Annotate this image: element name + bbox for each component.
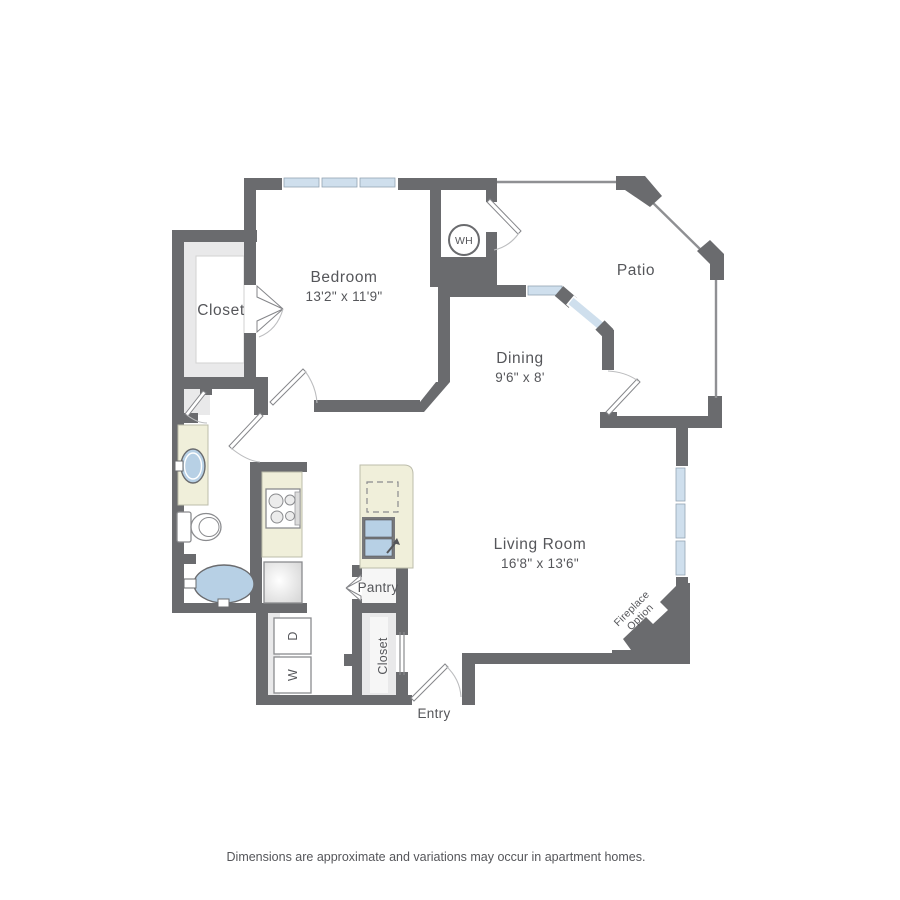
bedroom-door-leaf xyxy=(270,369,306,405)
bath-bottom-wall xyxy=(172,603,307,613)
bedroom-closet-label: Closet xyxy=(197,302,245,319)
unit-bottom-wall xyxy=(256,695,412,705)
water-heater-label: WH xyxy=(455,235,473,247)
wh-block xyxy=(430,257,497,287)
closet-slider-nub-top xyxy=(396,628,408,635)
disclaimer-text: Dimensions are approximate and variation… xyxy=(227,850,646,864)
bathroom xyxy=(175,425,254,607)
bedroom-closet-door-lower xyxy=(257,309,283,332)
patio-railing-diagonal xyxy=(648,198,703,252)
closet-bottom-wall xyxy=(172,377,268,389)
patio-door-leaf xyxy=(606,379,640,415)
water-heater-door-arc xyxy=(494,233,519,250)
patio-bottom-wall xyxy=(600,416,722,428)
bedroom-closet-door-upper xyxy=(257,286,283,309)
toilet-tank xyxy=(177,512,191,542)
living-window-2 xyxy=(676,504,685,538)
bedroom-door-arc xyxy=(305,371,317,403)
wh-left-wall xyxy=(430,190,441,265)
tub-divider-wall xyxy=(172,554,196,564)
tub-drain xyxy=(218,599,229,607)
windows xyxy=(282,176,688,577)
dining-diagonal-wall-2 xyxy=(600,325,609,334)
patio-door-arc xyxy=(608,371,638,381)
dining-top-wall xyxy=(438,285,530,297)
bathroom-door-leaf xyxy=(229,413,263,449)
living-window-1 xyxy=(676,468,685,501)
tub-spout xyxy=(184,579,196,588)
living-room-dims: 16'8" x 13'6" xyxy=(501,556,579,571)
closet-top-wall xyxy=(172,230,257,242)
bedroom-window-2 xyxy=(322,178,357,187)
dining-dims: 9'6" x 8' xyxy=(495,370,544,385)
pantry-closet-right-wall-bottom xyxy=(396,672,408,698)
laundry-nub-wall xyxy=(344,654,362,666)
entry-door-arc xyxy=(446,666,461,697)
toilet-seat xyxy=(199,518,219,537)
floorplan-canvas: Bedroom 13'2" x 11'9" Closet Dining 9'6"… xyxy=(0,0,900,900)
entry-door-leaf xyxy=(411,664,448,701)
floorplan-drawing: Bedroom 13'2" x 11'9" Closet Dining 9'6"… xyxy=(0,0,900,900)
burner-3 xyxy=(271,511,283,523)
living-window-3 xyxy=(676,541,685,575)
hall-wall-stub xyxy=(254,389,268,415)
entry-label: Entry xyxy=(417,706,450,721)
bedroom-dims: 13'2" x 11'9" xyxy=(306,289,383,304)
laundry-left-wall xyxy=(256,613,268,705)
bedroom-right-wall xyxy=(438,287,450,382)
burner-4 xyxy=(286,512,295,521)
living-room-label: Living Room xyxy=(494,536,587,553)
burner-2 xyxy=(285,495,295,505)
patio-label: Patio xyxy=(617,262,655,279)
bedroom-window-3 xyxy=(360,178,395,187)
patio-post-top xyxy=(616,176,662,207)
living-bottom-wall xyxy=(468,653,618,664)
island-sink-basin-1 xyxy=(365,520,392,537)
patio-corner-post xyxy=(708,396,722,428)
pantry-closet-right-wall-top xyxy=(396,566,408,633)
dining-diagonal-window xyxy=(571,301,601,326)
bedroom-left-wall-lower xyxy=(244,333,256,381)
bedroom-label: Bedroom xyxy=(310,269,377,286)
entry-closet-label: Closet xyxy=(376,637,390,674)
dining-label: Dining xyxy=(496,350,544,367)
stove-handle xyxy=(295,492,300,525)
bedroom-bottom-wall xyxy=(314,400,420,412)
patio-post-right xyxy=(697,240,724,280)
island-sink-basin-2 xyxy=(365,539,392,556)
burner-1 xyxy=(269,494,283,508)
pantry-label: Pantry xyxy=(358,580,399,595)
pantry-closet-divider xyxy=(352,603,408,613)
living-right-wall-upper xyxy=(676,428,688,468)
refrigerator xyxy=(264,562,302,603)
washer-label: W xyxy=(286,669,300,681)
dryer-label: D xyxy=(286,631,300,640)
bathtub xyxy=(194,565,254,603)
bedroom-window-1 xyxy=(284,178,319,187)
pantry-closet-left-wall xyxy=(352,599,362,698)
water-heater-door-leaf xyxy=(487,199,521,234)
sink-faucet xyxy=(175,461,183,471)
bathroom-door-arc xyxy=(231,448,260,462)
